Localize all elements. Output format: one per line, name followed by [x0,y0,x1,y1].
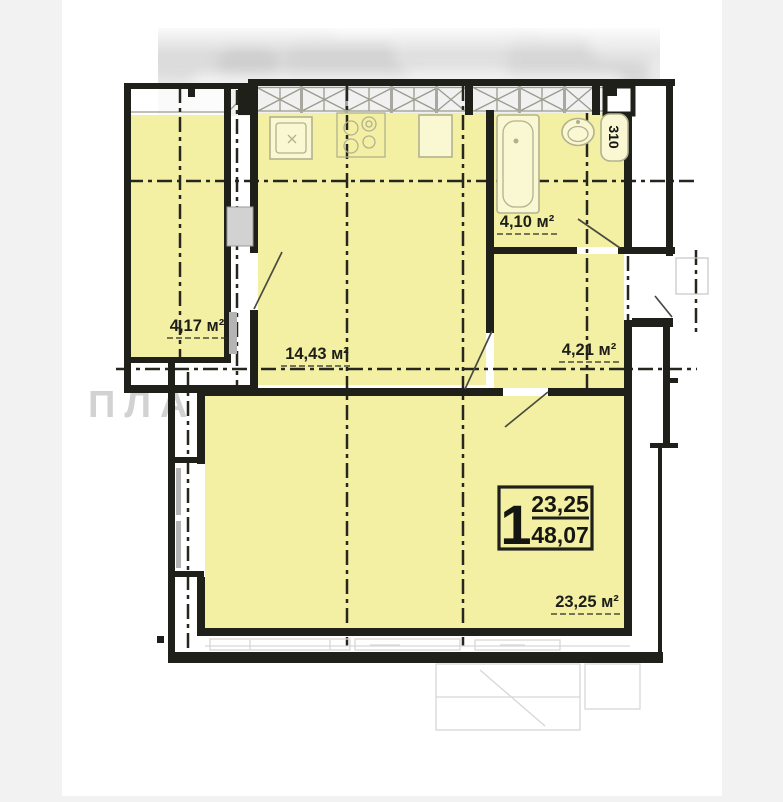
fridge-icon [419,115,452,157]
duct-label: 310 [606,125,622,149]
corridor-door-slab [227,207,253,246]
washbasin-icon [562,119,594,146]
entry-landing [676,258,708,294]
kitchen-area-label: 14,43 м² [285,345,349,363]
hallway-area-label: 4,21 м² [562,341,617,359]
kitchen-sink-icon [270,117,312,159]
loggia-window-band [131,86,224,115]
bay-window-glass [176,468,181,515]
bathtub-icon [497,115,539,213]
floor-plan-page: ПЛАНУВА [0,0,783,802]
duct-310-icon: 310 [601,114,628,161]
loggia-area-label: 4,17 м² [170,317,225,335]
unit-rooms-count: 1 [500,493,531,556]
floor-plan-drawing: 310 4,17 м² [0,0,783,802]
unit-total-area: 48,07 [531,522,589,548]
entry-door-swing [655,296,672,317]
unit-info-box: 1 23,25 48,07 [499,487,592,556]
bathroom-area-label: 4,10 м² [500,213,555,231]
unit-living-area: 23,25 [531,491,589,517]
corridor-glass [229,312,237,354]
bay-window-glass [176,521,181,568]
shaft-mask [632,86,666,116]
living-area-label: 23,25 м² [555,593,619,611]
